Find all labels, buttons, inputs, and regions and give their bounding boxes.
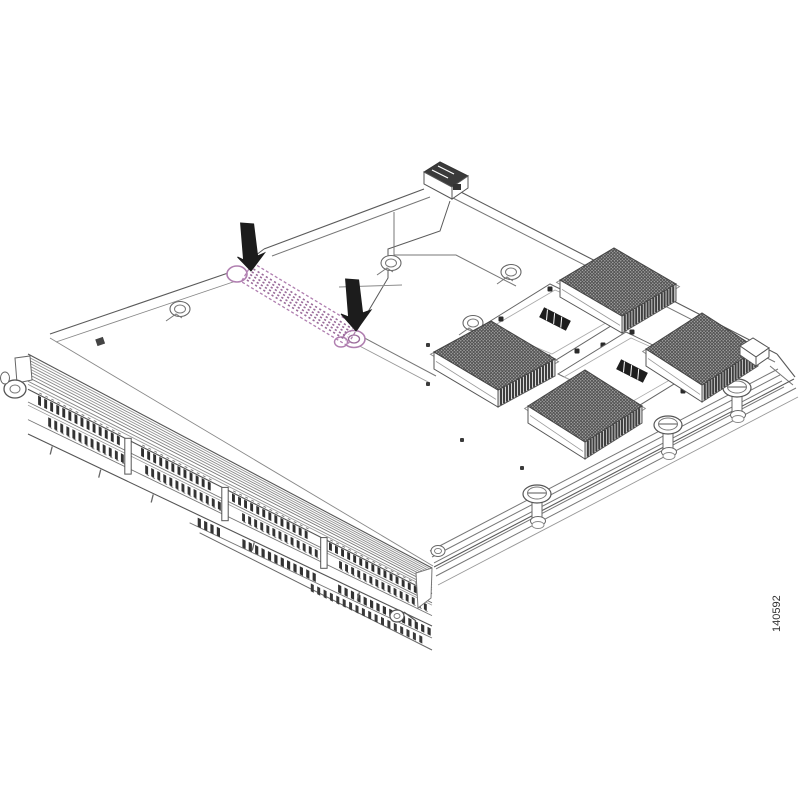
svg-text:140592: 140592	[771, 595, 783, 632]
